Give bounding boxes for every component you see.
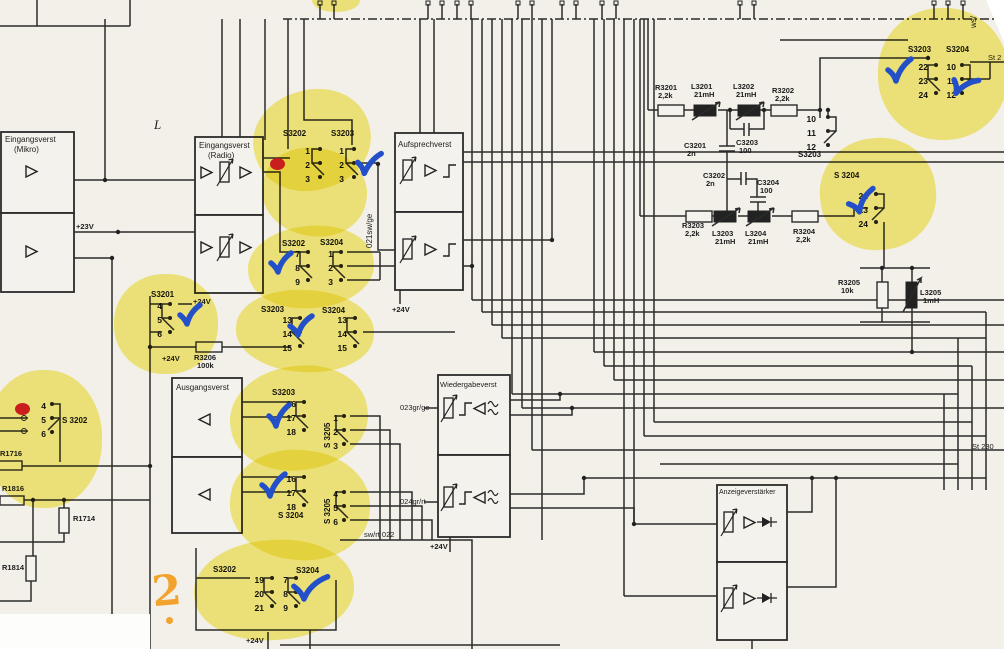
title-mikro-line1: Eingangsverst: [5, 135, 56, 144]
label-plus23v: +23V: [76, 222, 94, 231]
inductor-l3201: [692, 102, 720, 120]
component-label-c3201: C32012n: [684, 142, 706, 158]
label-st230: St 230: [972, 442, 994, 451]
red-dot-1: [270, 158, 285, 170]
component-label-l3201: L320121mH: [691, 83, 714, 99]
component-label-l3204: L320421mH: [745, 230, 768, 246]
component-label-c3203: C3203100: [736, 139, 758, 155]
label-plus24v-4: +24V: [430, 542, 448, 551]
component-label-r3204: R32042,2k: [793, 228, 815, 244]
title-aufsprechverst: Aufsprechverst: [398, 140, 451, 149]
component-label-r3205: R320510k: [838, 279, 860, 295]
handwritten-question-dot: [166, 617, 173, 624]
label-l-marker: L: [154, 117, 161, 133]
resistor-r3201: [658, 105, 684, 116]
red-dot-2: [15, 403, 30, 415]
title-anzeigeverstaerker: Anzeigeverstärker: [719, 489, 775, 496]
component-label-r3202: R32022,2k: [772, 87, 794, 103]
component-label-c3202: C32022n: [703, 172, 725, 188]
inductor-l3205: [903, 278, 921, 312]
component-label-r1714: R1714: [73, 515, 95, 523]
wire-label-024grrt: 024gr/rt: [400, 497, 426, 506]
resistor-r1714: [59, 508, 69, 533]
component-label-c3204: C3204100: [757, 179, 779, 195]
component-label-r1814: R1814: [2, 564, 24, 572]
title-mikro-line2: (Mikro): [14, 145, 39, 154]
scanned-schematic-page: 021sw/ge S 3205 S 3205 ws/ Eingangsverst…: [0, 0, 1004, 649]
amplifier-boxes: [1, 132, 787, 640]
component-label-l3205: L32051mH: [920, 289, 941, 305]
resistor-r3204: [792, 211, 818, 222]
scan-edge-bottom-left: [0, 614, 150, 649]
pins-g11: 101112: [796, 112, 816, 154]
handwritten-question-mark: 2: [150, 565, 183, 616]
resistor-r1814: [26, 556, 36, 581]
resistor-r3205: [877, 282, 888, 308]
inductor-l3203: [712, 208, 740, 226]
title-radio-line2: (Radio): [208, 151, 234, 160]
inductor-l3204: [746, 208, 774, 226]
title-ausgangsverst: Ausgangsverst: [176, 383, 229, 392]
highlighter-mark-5: [0, 370, 102, 508]
label-plus24v-3: +24V: [392, 305, 410, 314]
component-label-r3203: R32032,2k: [682, 222, 704, 238]
wire-label-023grge: 023gr/ge: [400, 403, 430, 412]
title-radio-line1: Eingangsverst: [199, 141, 250, 150]
component-label-l3202: L320221mH: [733, 83, 756, 99]
wire-label-swrt022: sw/rt 022: [364, 530, 394, 539]
component-label-r3201: R32012,2k: [655, 84, 677, 100]
inductor-l3202: [736, 102, 764, 120]
title-wiedergabeverst: Wiedergabeverst: [440, 380, 497, 389]
component-label-l3203: L320321mH: [712, 230, 735, 246]
resistor-r3202: [771, 105, 797, 116]
